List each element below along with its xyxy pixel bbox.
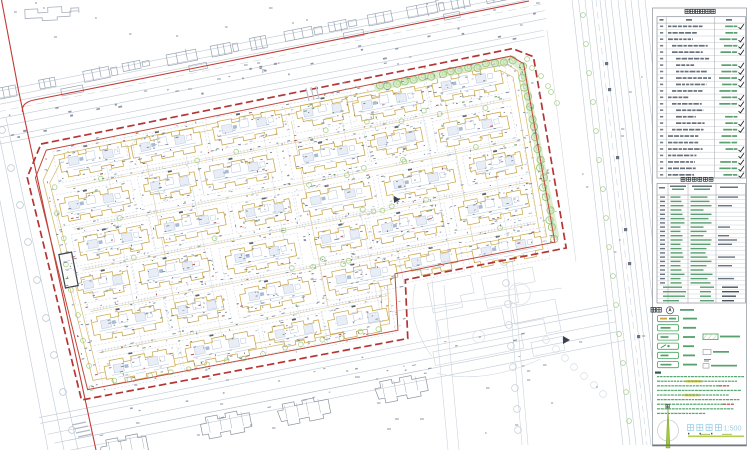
svg-text:1:500: 1:500 (724, 423, 742, 432)
